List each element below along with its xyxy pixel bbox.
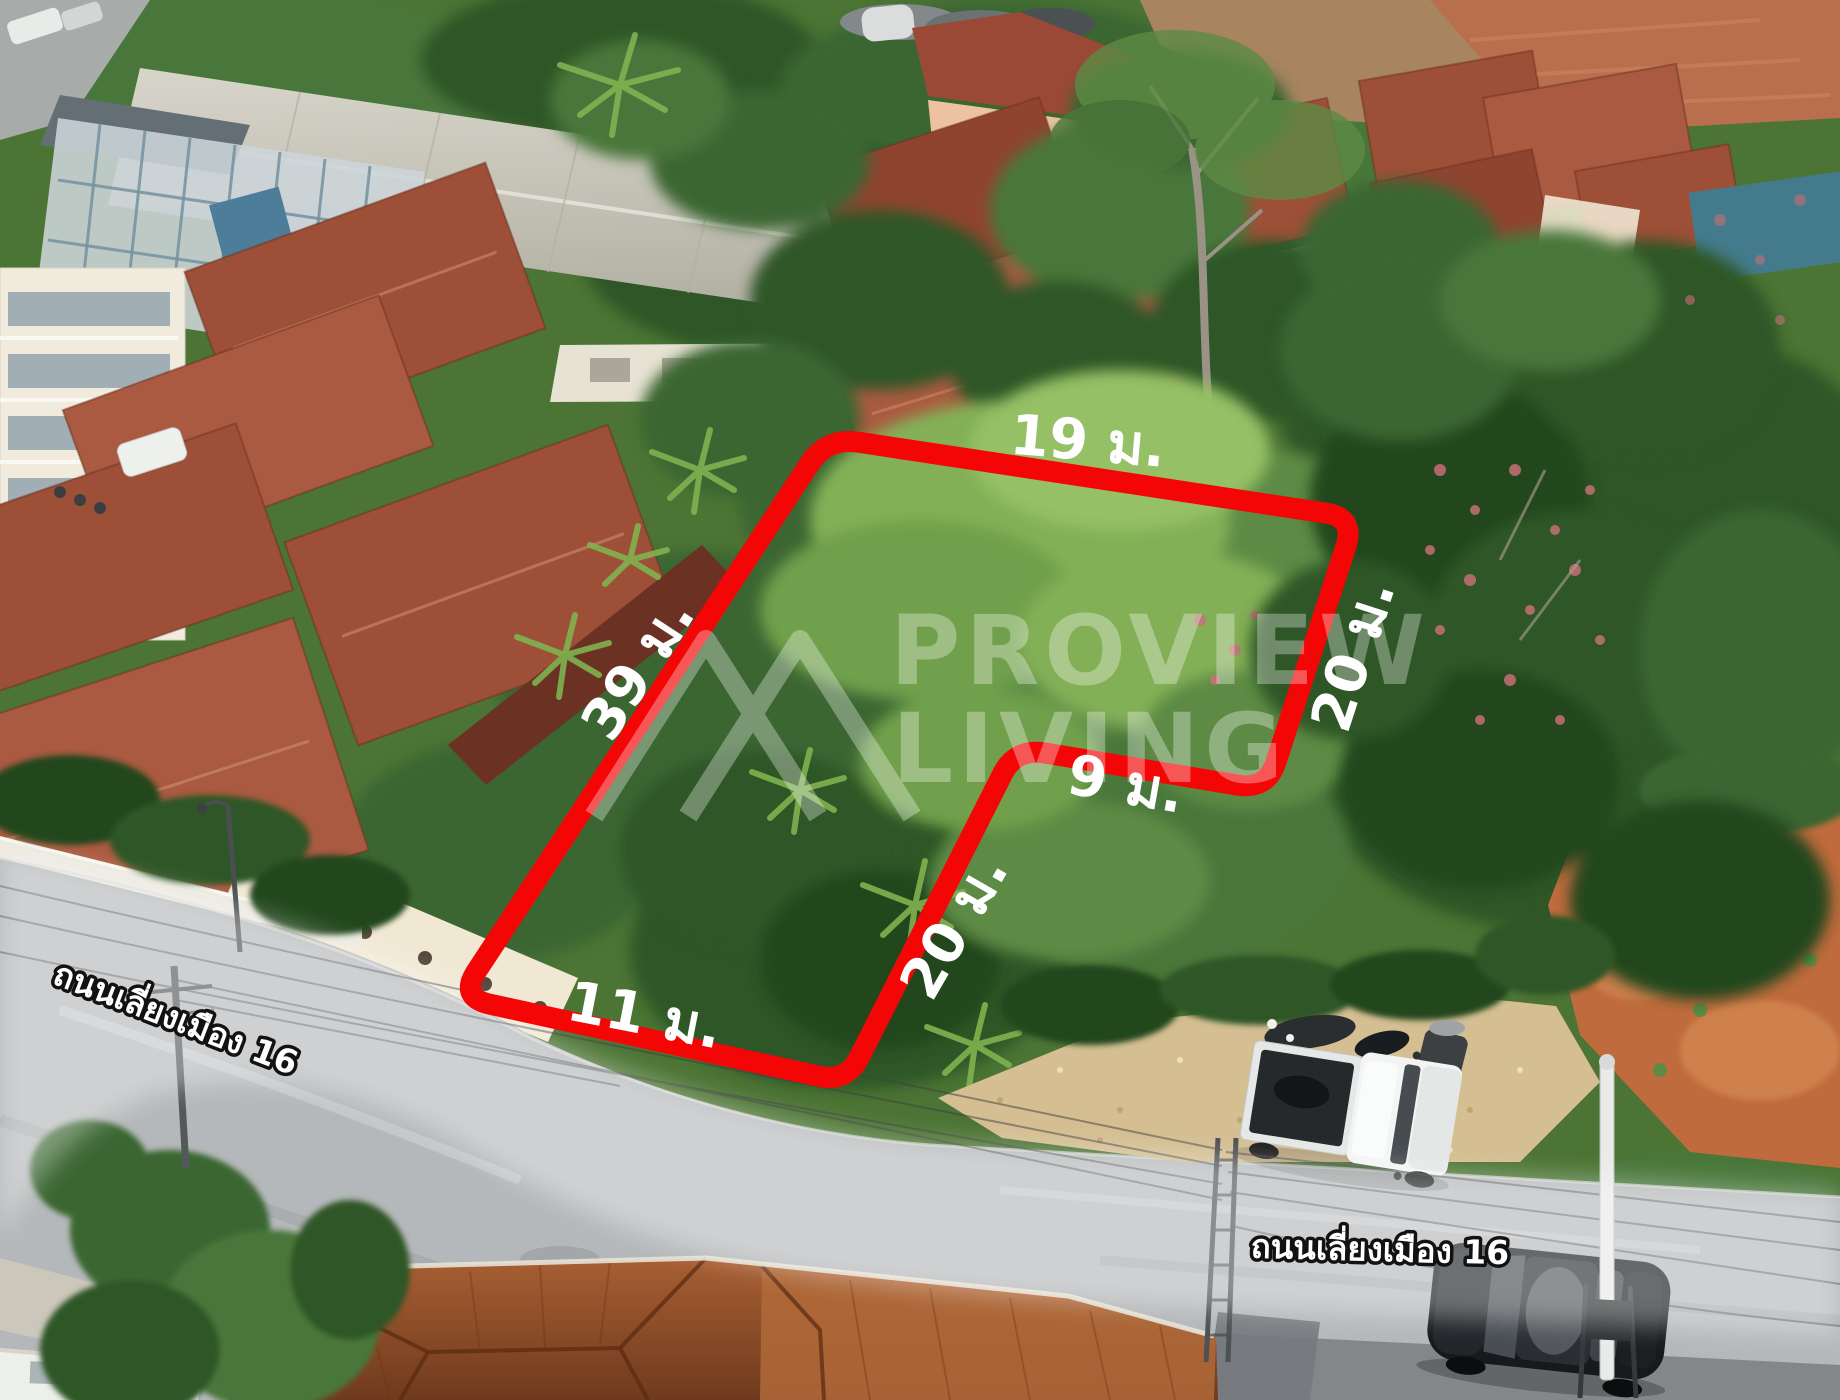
watermark-text-line2: LIVING [892,693,1288,805]
watermark-text-line1: PROVIEW [890,595,1430,707]
dimension-label-top: 19 ม. [1008,402,1169,480]
aerial-photo: 19 ม. 20 ม. 9 ม. 20 ม. 39 ม. 11 ม. ถนนเล… [0,0,1840,1400]
